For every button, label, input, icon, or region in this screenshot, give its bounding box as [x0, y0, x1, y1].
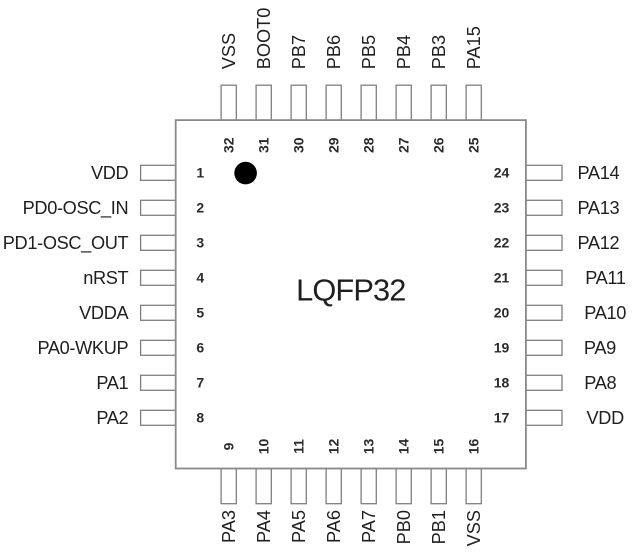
svg-text:PA12: PA12: [578, 233, 620, 253]
svg-text:21: 21: [494, 270, 510, 286]
svg-text:PB7: PB7: [289, 35, 309, 69]
svg-text:14: 14: [396, 439, 412, 455]
svg-text:PB5: PB5: [359, 35, 379, 69]
svg-text:PD0-OSC_IN: PD0-OSC_IN: [23, 198, 129, 219]
svg-text:PA6: PA6: [324, 510, 344, 543]
svg-text:PB3: PB3: [429, 35, 449, 69]
svg-text:8: 8: [196, 410, 204, 426]
svg-text:10: 10: [256, 439, 272, 455]
svg-text:19: 19: [494, 340, 510, 356]
svg-text:PA4: PA4: [254, 510, 274, 543]
svg-text:15: 15: [431, 439, 447, 455]
svg-text:16: 16: [466, 439, 482, 455]
svg-text:20: 20: [494, 305, 510, 321]
svg-text:LQFP32: LQFP32: [296, 273, 405, 308]
svg-text:PA10: PA10: [584, 303, 626, 323]
svg-text:VDDA: VDDA: [79, 303, 129, 323]
svg-text:28: 28: [361, 137, 377, 153]
svg-text:22: 22: [494, 235, 510, 251]
svg-text:BOOT0: BOOT0: [254, 8, 274, 70]
svg-text:1: 1: [196, 165, 204, 181]
svg-text:32: 32: [221, 137, 237, 153]
svg-text:13: 13: [361, 439, 377, 455]
svg-text:23: 23: [494, 200, 510, 216]
svg-text:6: 6: [196, 340, 204, 356]
svg-text:VSS: VSS: [219, 33, 239, 69]
svg-text:24: 24: [494, 165, 510, 181]
svg-text:PA8: PA8: [584, 373, 616, 393]
svg-text:PA5: PA5: [289, 510, 309, 543]
svg-text:PB6: PB6: [324, 35, 344, 69]
svg-text:PA15: PA15: [464, 26, 484, 69]
svg-text:3: 3: [196, 235, 204, 251]
svg-text:9: 9: [221, 442, 237, 450]
svg-text:PB4: PB4: [394, 35, 414, 69]
svg-text:PD1-OSC_OUT: PD1-OSC_OUT: [3, 233, 129, 254]
svg-text:26: 26: [431, 137, 447, 153]
svg-text:PA7: PA7: [359, 510, 379, 543]
svg-text:PA0-WKUP: PA0-WKUP: [37, 338, 128, 358]
svg-text:nRST: nRST: [83, 268, 128, 288]
svg-text:PA2: PA2: [96, 408, 128, 428]
svg-text:27: 27: [396, 137, 412, 153]
svg-text:4: 4: [196, 270, 204, 286]
svg-text:25: 25: [466, 137, 482, 153]
svg-text:VDD: VDD: [587, 408, 625, 428]
svg-text:17: 17: [494, 410, 510, 426]
svg-text:PA9: PA9: [584, 338, 616, 358]
svg-text:30: 30: [291, 137, 307, 153]
svg-text:PB1: PB1: [429, 510, 449, 544]
svg-text:PA13: PA13: [578, 198, 620, 218]
svg-text:7: 7: [196, 375, 204, 391]
svg-text:PA11: PA11: [585, 268, 626, 288]
svg-text:12: 12: [326, 439, 342, 455]
svg-text:PA1: PA1: [96, 373, 128, 393]
svg-text:18: 18: [494, 375, 510, 391]
svg-text:VDD: VDD: [91, 163, 129, 183]
svg-text:31: 31: [256, 137, 272, 153]
svg-text:VSS: VSS: [464, 510, 484, 546]
svg-text:PA3: PA3: [219, 510, 239, 543]
svg-text:PB0: PB0: [394, 510, 414, 544]
svg-text:5: 5: [196, 305, 204, 321]
svg-text:2: 2: [196, 200, 204, 216]
svg-text:PA14: PA14: [578, 163, 620, 183]
svg-text:29: 29: [326, 137, 342, 153]
svg-text:11: 11: [291, 439, 307, 454]
